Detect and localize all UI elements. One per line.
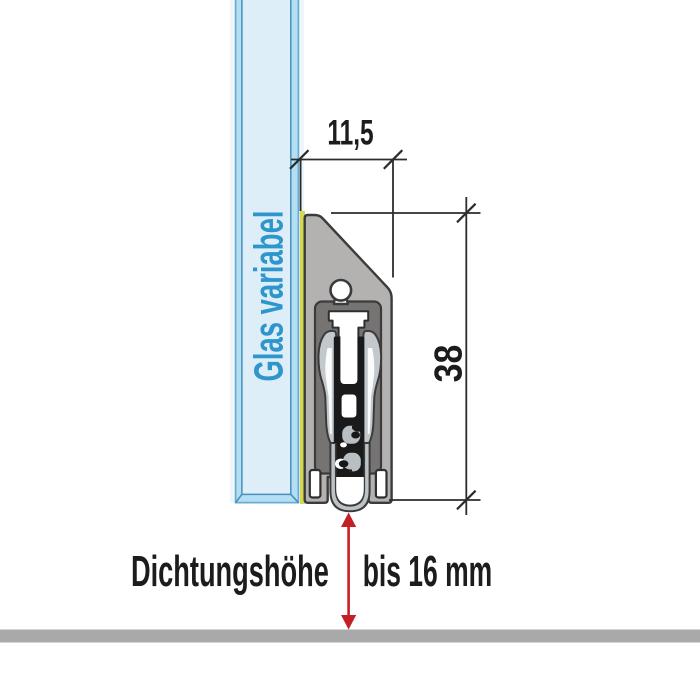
svg-text:11,5: 11,5 (327, 113, 373, 153)
svg-text:38: 38 (426, 345, 470, 383)
svg-text:Dichtungshöhe: Dichtungshöhe (131, 546, 329, 595)
svg-text:Glas variabel: Glas variabel (246, 211, 292, 382)
svg-text:bis 16 mm: bis 16 mm (363, 546, 493, 596)
